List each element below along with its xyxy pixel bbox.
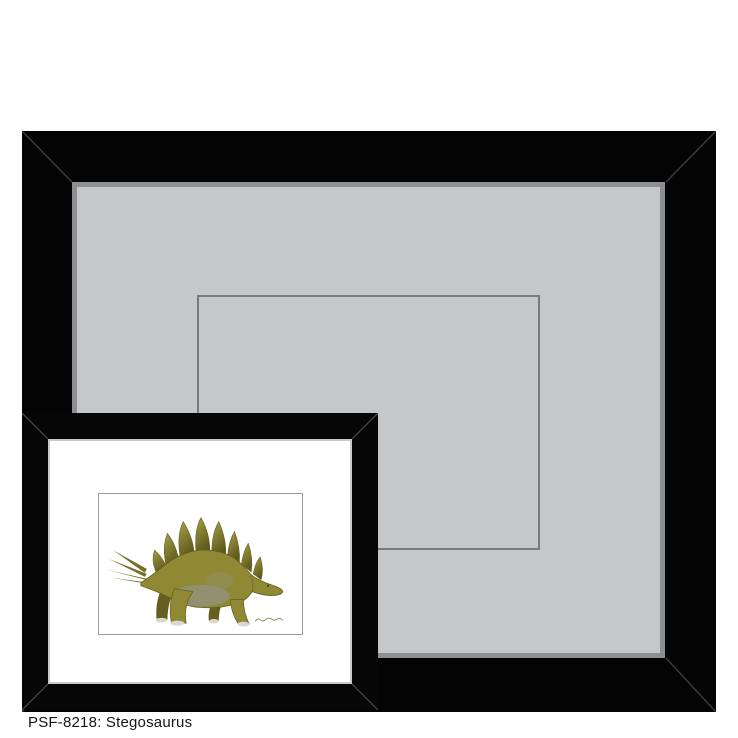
rear-foot-icon — [170, 621, 184, 626]
caption-text: PSF-8218: Stegosaurus — [28, 714, 192, 732]
small-frame-white-mat — [48, 439, 352, 684]
small-black-frame — [22, 413, 378, 710]
tail-spikes-icon — [107, 550, 148, 584]
artist-signature — [255, 618, 283, 621]
product-mockup-scene: PSF-8218: Stegosaurus — [0, 0, 738, 738]
eye-icon — [267, 585, 269, 587]
shoulder-shading — [206, 572, 234, 590]
stegosaurus-illustration — [99, 494, 302, 634]
stegosaurus-print — [98, 493, 303, 635]
front-foot-icon — [237, 622, 249, 627]
